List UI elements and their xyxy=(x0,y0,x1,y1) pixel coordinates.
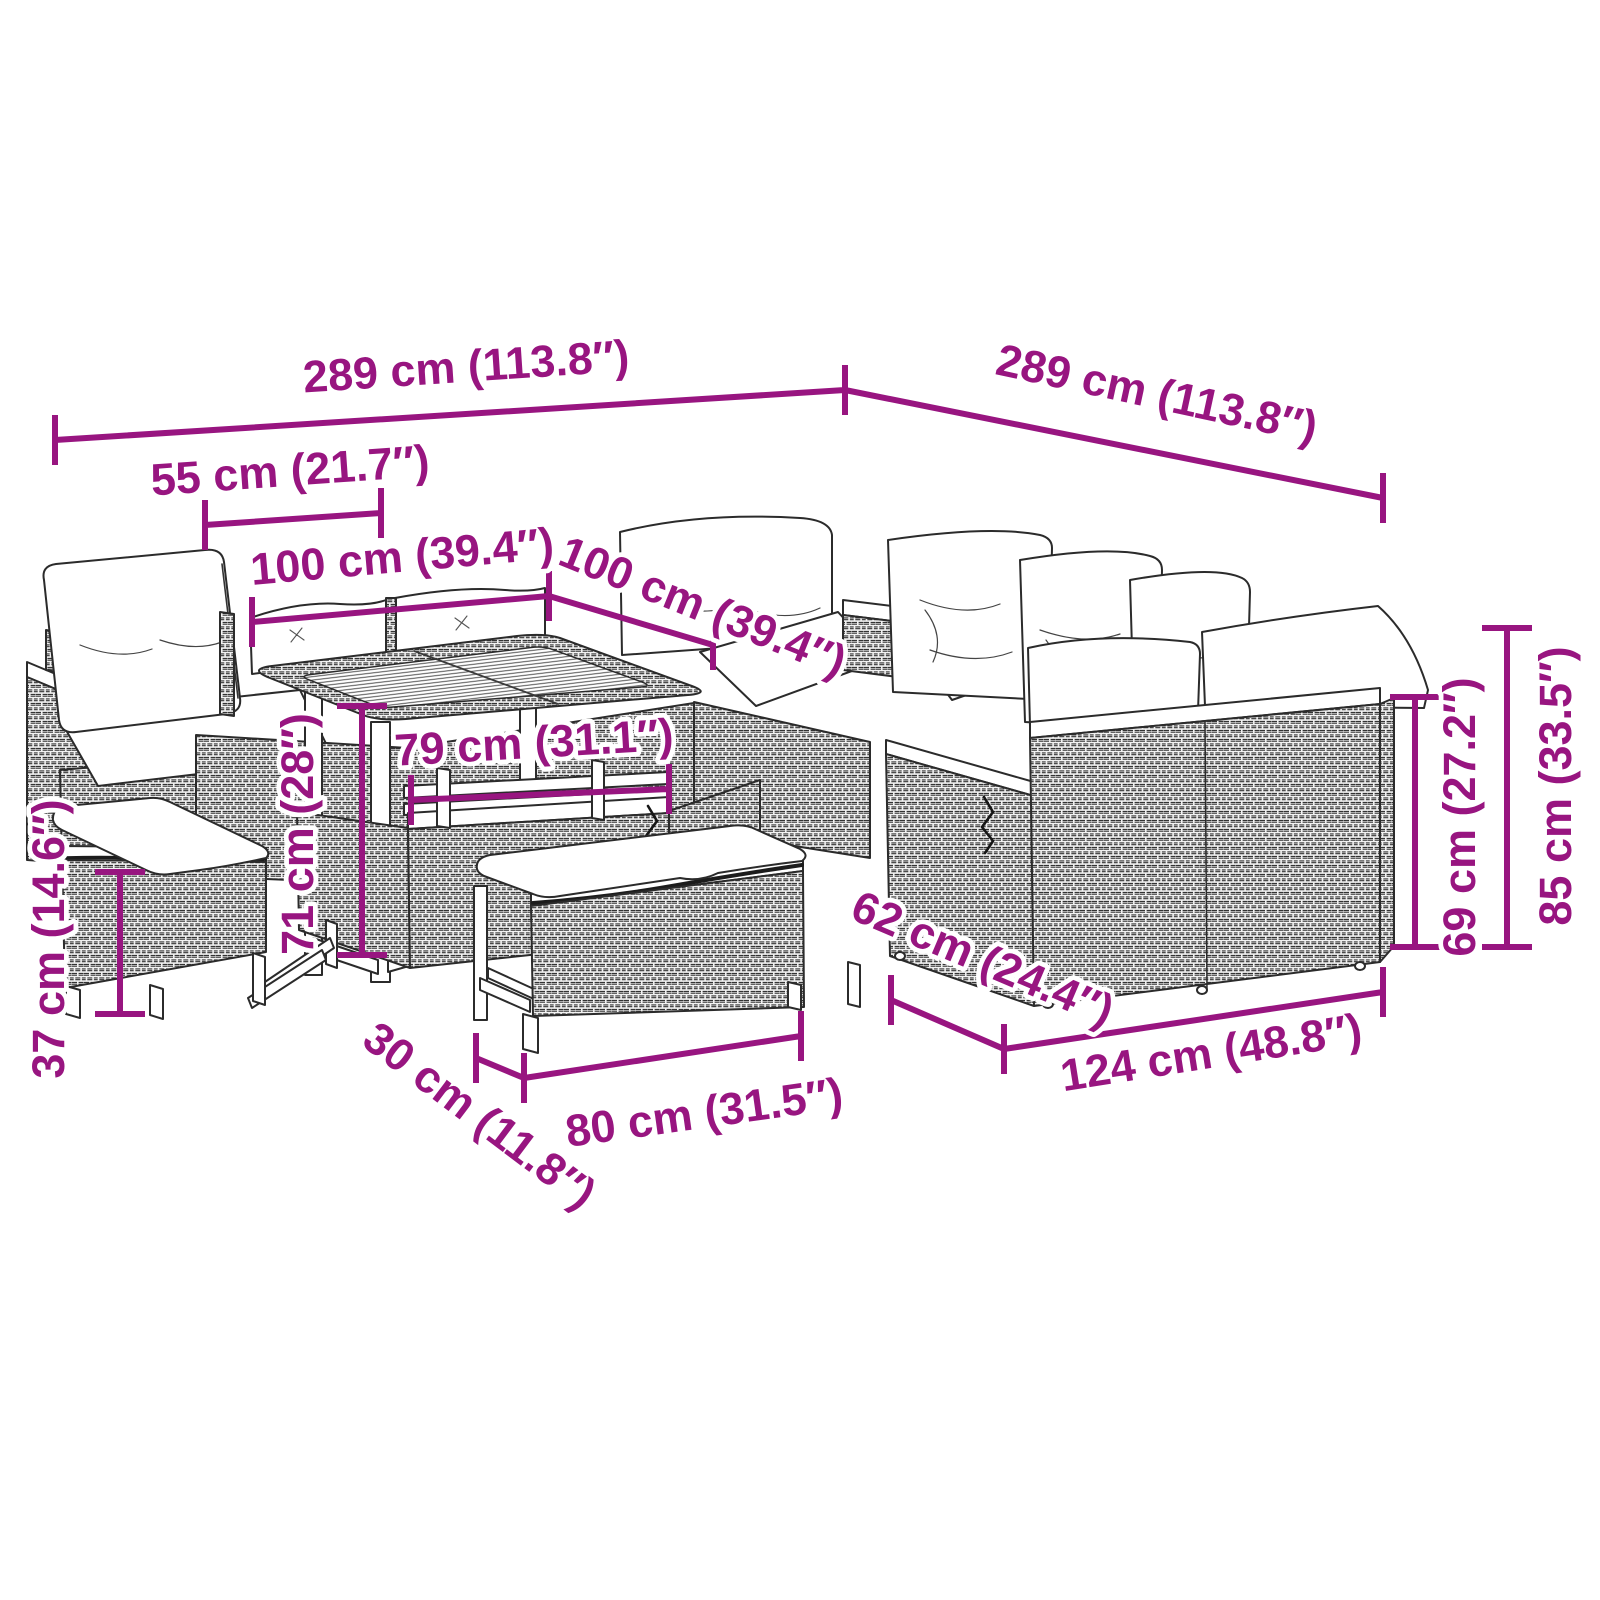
svg-text:71 cm (28″): 71 cm (28″) xyxy=(272,713,323,955)
svg-text:85 cm (33.5″): 85 cm (33.5″) xyxy=(1530,646,1581,925)
svg-text:69 cm (27.2″): 69 cm (27.2″) xyxy=(1434,677,1485,956)
svg-text:37 cm (14.6″): 37 cm (14.6″) xyxy=(23,799,74,1078)
